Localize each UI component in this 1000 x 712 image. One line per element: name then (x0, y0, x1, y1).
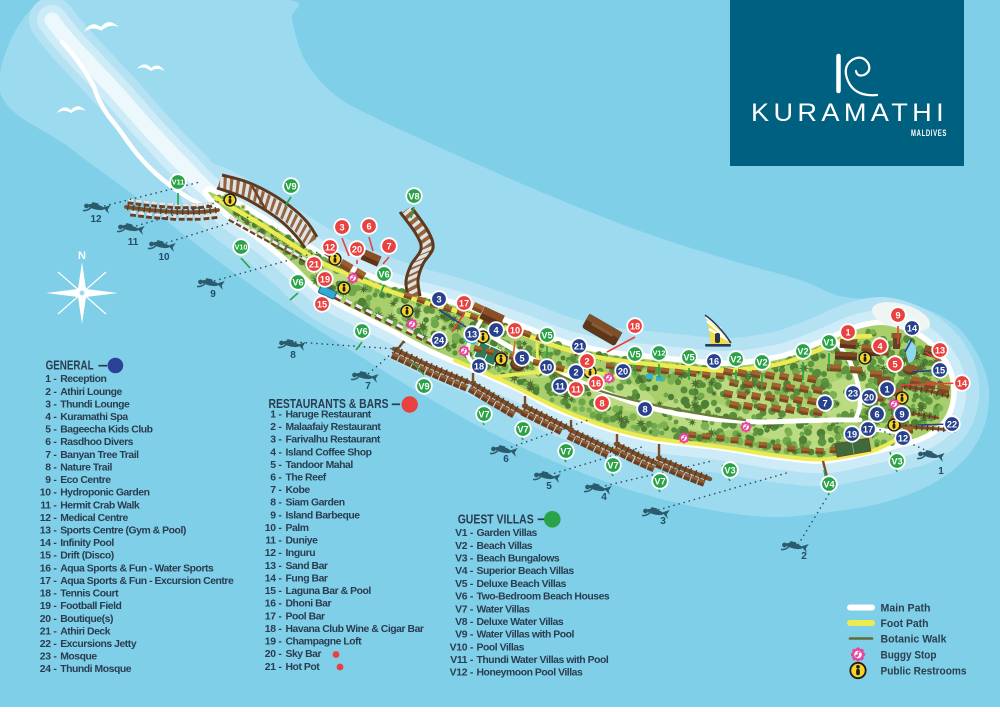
svg-text:13 -: 13 - (265, 561, 283, 572)
svg-text:V8 -: V8 - (455, 617, 474, 628)
svg-text:Thundi Lounge: Thundi Lounge (60, 399, 130, 410)
svg-text:21 -: 21 - (265, 662, 283, 673)
svg-text:19: 19 (847, 429, 857, 439)
svg-text:4 -: 4 - (270, 447, 282, 458)
svg-text:1: 1 (938, 466, 944, 477)
svg-text:13: 13 (935, 345, 945, 355)
svg-text:4: 4 (601, 492, 607, 503)
svg-text:6 -: 6 - (270, 473, 282, 484)
svg-text:V3: V3 (891, 456, 902, 466)
svg-text:V4: V4 (823, 479, 835, 489)
svg-text:The Reef: The Reef (286, 473, 327, 484)
svg-text:Honeymoon Pool Villas: Honeymoon Pool Villas (477, 668, 584, 679)
svg-text:3: 3 (436, 294, 441, 304)
svg-text:8 -: 8 - (45, 463, 57, 474)
svg-text:Bageecha Kids Club: Bageecha Kids Club (60, 425, 152, 436)
svg-text:6 -: 6 - (45, 437, 57, 448)
svg-text:7 -: 7 - (270, 485, 282, 496)
svg-text:Nature Trail: Nature Trail (60, 463, 112, 474)
svg-text:8: 8 (290, 350, 296, 361)
svg-text:Infinity Pool: Infinity Pool (60, 538, 114, 549)
svg-text:8 -: 8 - (270, 498, 282, 509)
svg-text:20: 20 (864, 392, 874, 402)
svg-text:V2: V2 (797, 346, 808, 356)
svg-text:17 -: 17 - (40, 576, 58, 587)
svg-text:18 -: 18 - (40, 589, 58, 600)
svg-text:V7: V7 (607, 460, 618, 470)
svg-text:14 -: 14 - (265, 574, 283, 585)
svg-text:24: 24 (434, 335, 445, 345)
svg-text:21: 21 (309, 259, 319, 269)
svg-text:V2 -: V2 - (455, 541, 474, 552)
svg-text:Botanic Walk: Botanic Walk (881, 634, 948, 646)
svg-text:V5: V5 (629, 349, 640, 359)
svg-text:9: 9 (899, 409, 904, 419)
svg-text:Champagne Loft: Champagne Loft (286, 637, 363, 648)
svg-text:3 -: 3 - (45, 399, 57, 410)
svg-text:8: 8 (599, 398, 604, 408)
svg-text:12 -: 12 - (40, 513, 58, 524)
svg-text:V5: V5 (541, 330, 552, 340)
svg-text:V1 -: V1 - (455, 528, 474, 539)
svg-text:Hydroponic Garden: Hydroponic Garden (60, 488, 149, 499)
svg-text:1: 1 (884, 384, 889, 394)
svg-text:Island Barbeque: Island Barbeque (286, 510, 361, 521)
svg-text:2 -: 2 - (45, 387, 57, 398)
svg-text:17: 17 (459, 298, 469, 308)
svg-text:Main Path: Main Path (881, 603, 931, 615)
svg-text:V10: V10 (235, 243, 248, 252)
svg-text:Malaafaiy Restaurant: Malaafaiy Restaurant (286, 422, 382, 433)
svg-text:Dhoni Bar: Dhoni Bar (286, 599, 332, 610)
svg-text:22 -: 22 - (40, 639, 58, 650)
svg-text:1 -: 1 - (270, 409, 282, 420)
svg-text:Hermit Crab Walk: Hermit Crab Walk (60, 500, 140, 511)
svg-text:Excursions Jetty: Excursions Jetty (60, 639, 137, 650)
svg-text:Reception: Reception (60, 374, 106, 385)
svg-text:V9: V9 (418, 381, 429, 391)
svg-text:Sand Bar: Sand Bar (286, 561, 328, 572)
svg-text:18: 18 (630, 321, 640, 331)
svg-text:7: 7 (386, 241, 391, 251)
svg-text:V5 -: V5 - (455, 579, 474, 590)
svg-text:Hot Pot: Hot Pot (286, 662, 321, 673)
svg-text:Water Villas: Water Villas (477, 604, 531, 615)
svg-text:Public Restrooms: Public Restrooms (881, 666, 967, 678)
svg-text:10 -: 10 - (265, 523, 283, 534)
svg-text:9: 9 (895, 310, 900, 320)
svg-text:7: 7 (822, 398, 827, 408)
svg-text:4 -: 4 - (45, 412, 57, 423)
svg-text:V5: V5 (683, 352, 694, 362)
svg-text:3: 3 (660, 516, 666, 527)
svg-text:14: 14 (957, 378, 968, 388)
svg-text:Sports Centre (Gym & Pool): Sports Centre (Gym & Pool) (60, 526, 186, 537)
svg-text:V12: V12 (653, 349, 666, 358)
svg-text:V12 -: V12 - (450, 668, 474, 679)
svg-text:20: 20 (618, 366, 628, 376)
svg-text:Duniye: Duniye (286, 536, 319, 547)
svg-text:11: 11 (128, 237, 139, 248)
svg-text:19 -: 19 - (265, 637, 283, 648)
svg-text:5: 5 (546, 481, 552, 492)
svg-text:Thundi Water Villas with Pool: Thundi Water Villas with Pool (477, 655, 609, 666)
svg-text:Tennis Court: Tennis Court (60, 589, 119, 600)
svg-text:15: 15 (317, 299, 327, 309)
svg-text:9 -: 9 - (270, 510, 282, 521)
svg-text:15 -: 15 - (265, 586, 283, 597)
svg-text:Medical Centre: Medical Centre (60, 513, 128, 524)
svg-text:16: 16 (709, 356, 719, 366)
svg-text:19: 19 (320, 274, 330, 284)
svg-text:15: 15 (935, 365, 945, 375)
svg-text:Thundi Mosque: Thundi Mosque (60, 664, 132, 675)
svg-text:8: 8 (642, 404, 647, 414)
svg-text:23 -: 23 - (40, 652, 58, 663)
svg-text:17 -: 17 - (265, 611, 283, 622)
svg-text:9 -: 9 - (45, 475, 57, 486)
svg-text:6: 6 (503, 454, 509, 465)
svg-text:Superior Beach Villas: Superior Beach Villas (477, 566, 575, 577)
svg-text:V7 -: V7 - (455, 604, 474, 615)
svg-text:V11 -: V11 - (450, 655, 474, 666)
svg-text:17: 17 (863, 424, 873, 434)
svg-text:Farivalhu Restaurant: Farivalhu Restaurant (286, 435, 381, 446)
svg-text:12: 12 (325, 242, 335, 252)
svg-text:V2: V2 (756, 357, 767, 367)
svg-text:Inguru: Inguru (286, 548, 316, 559)
svg-text:Pool Bar: Pool Bar (286, 611, 326, 622)
svg-text:11: 11 (571, 384, 581, 394)
svg-text:14 -: 14 - (40, 538, 58, 549)
svg-text:Deluxe Water Villas: Deluxe Water Villas (477, 617, 564, 628)
svg-text:Drift (Disco): Drift (Disco) (60, 551, 114, 562)
svg-text:24 -: 24 - (40, 664, 58, 675)
svg-text:Palm: Palm (286, 523, 309, 534)
svg-text:6: 6 (874, 409, 879, 419)
svg-text:Siam Garden: Siam Garden (286, 498, 345, 509)
svg-text:Boutique(s): Boutique(s) (60, 614, 113, 625)
svg-text:V7: V7 (517, 424, 528, 434)
svg-text:Pool Villas: Pool Villas (477, 642, 525, 653)
svg-text:15 -: 15 - (40, 551, 58, 562)
svg-text:18: 18 (474, 361, 484, 371)
svg-text:Banyan Tree Trail: Banyan Tree Trail (60, 450, 139, 461)
svg-text:13 -: 13 - (40, 526, 58, 537)
svg-text:V8: V8 (408, 191, 419, 201)
svg-text:5 -: 5 - (270, 460, 282, 471)
svg-text:2: 2 (584, 356, 589, 366)
svg-text:7 -: 7 - (45, 450, 57, 461)
svg-text:V3 -: V3 - (455, 554, 474, 565)
svg-text:11 -: 11 - (40, 500, 57, 511)
svg-text:V11: V11 (172, 178, 184, 187)
svg-text:21: 21 (574, 341, 584, 351)
svg-text:11 -: 11 - (265, 536, 282, 547)
svg-text:1: 1 (845, 327, 850, 337)
svg-text:Beach Villas: Beach Villas (477, 541, 533, 552)
svg-text:16 -: 16 - (265, 599, 283, 610)
svg-text:Rasdhoo Divers: Rasdhoo Divers (60, 437, 133, 448)
svg-text:Football Field: Football Field (60, 601, 121, 612)
svg-text:Laguna Bar & Pool: Laguna Bar & Pool (286, 586, 372, 597)
svg-text:KURAMATHI: KURAMATHI (751, 99, 948, 127)
svg-text:2: 2 (801, 551, 807, 562)
svg-text:7: 7 (365, 381, 371, 392)
svg-text:1 -: 1 - (45, 374, 57, 385)
svg-text:Beach Bungalows: Beach Bungalows (477, 554, 560, 565)
svg-text:4: 4 (877, 341, 883, 351)
svg-text:V10 -: V10 - (450, 642, 474, 653)
svg-text:Deluxe Beach Villas: Deluxe Beach Villas (477, 579, 567, 590)
svg-text:Buggy Stop: Buggy Stop (881, 650, 937, 662)
svg-text:5: 5 (519, 353, 524, 363)
svg-text:V4 -: V4 - (455, 566, 474, 577)
svg-text:Water Villas with Pool: Water Villas with Pool (477, 630, 575, 641)
svg-text:11: 11 (555, 381, 565, 391)
svg-text:MALDIVES: MALDIVES (911, 128, 947, 138)
svg-text:V6: V6 (378, 269, 389, 279)
svg-text:V6 -: V6 - (455, 592, 474, 603)
svg-text:V2: V2 (730, 354, 741, 364)
svg-text:Two-Bedroom Beach Houses: Two-Bedroom Beach Houses (477, 592, 610, 603)
svg-text:Eco Centre: Eco Centre (60, 475, 111, 486)
svg-text:Haruge Restaurant: Haruge Restaurant (286, 409, 372, 420)
svg-text:3 -: 3 - (270, 435, 282, 446)
svg-text:Garden Villas: Garden Villas (477, 528, 538, 539)
svg-text:Aqua Sports & Fun - Water Spor: Aqua Sports & Fun - Water Sports (60, 563, 214, 574)
svg-text:10: 10 (158, 252, 170, 263)
svg-text:6: 6 (366, 221, 371, 231)
svg-text:19 -: 19 - (40, 601, 58, 612)
svg-text:2 -: 2 - (270, 422, 282, 433)
svg-text:V3: V3 (724, 465, 735, 475)
svg-text:13: 13 (467, 329, 477, 339)
svg-text:18 -: 18 - (265, 624, 283, 635)
svg-text:V6: V6 (356, 326, 367, 336)
svg-text:GENERAL: GENERAL (46, 358, 94, 373)
svg-text:5: 5 (892, 359, 897, 369)
svg-text:20 -: 20 - (40, 614, 58, 625)
svg-text:Havana Club Wine & Cigar Bar: Havana Club Wine & Cigar Bar (286, 624, 424, 635)
svg-text:Kobe: Kobe (286, 485, 311, 496)
svg-text:5 -: 5 - (45, 425, 57, 436)
svg-text:23: 23 (848, 388, 858, 398)
svg-text:12: 12 (90, 214, 102, 225)
svg-text:4: 4 (493, 325, 499, 335)
svg-text:3: 3 (339, 222, 344, 232)
svg-text:V1: V1 (823, 337, 834, 347)
svg-text:N: N (78, 250, 86, 262)
svg-text:V7: V7 (654, 476, 665, 486)
svg-text:10: 10 (510, 325, 520, 335)
svg-text:9: 9 (210, 289, 216, 300)
svg-text:12: 12 (898, 433, 908, 443)
svg-text:16 -: 16 - (40, 563, 58, 574)
svg-text:Aqua Sports & Fun - Excursion: Aqua Sports & Fun - Excursion Centre (60, 576, 234, 587)
svg-text:10: 10 (542, 362, 552, 372)
svg-text:10 -: 10 - (40, 488, 58, 499)
svg-text:Athiri Deck: Athiri Deck (60, 626, 111, 637)
svg-text:Sky Bar: Sky Bar (286, 649, 322, 660)
svg-text:Athiri Lounge: Athiri Lounge (60, 387, 122, 398)
svg-text:Fung Bar: Fung Bar (286, 574, 328, 585)
svg-text:V9 -: V9 - (455, 630, 474, 641)
svg-text:V6: V6 (292, 277, 303, 287)
svg-text:V7: V7 (478, 409, 489, 419)
svg-text:Kuramathi Spa: Kuramathi Spa (60, 412, 128, 423)
svg-text:16: 16 (591, 378, 601, 388)
svg-text:20: 20 (352, 244, 362, 254)
svg-text:Island Coffee Shop: Island Coffee Shop (286, 447, 372, 458)
svg-text:22: 22 (947, 419, 957, 429)
svg-text:21 -: 21 - (40, 626, 58, 637)
svg-text:V9: V9 (285, 181, 296, 191)
svg-text:Mosque: Mosque (60, 652, 97, 663)
svg-text:12 -: 12 - (265, 548, 283, 559)
svg-text:GUEST VILLAS: GUEST VILLAS (458, 511, 534, 526)
svg-text:Tandoor Mahal: Tandoor Mahal (286, 460, 354, 471)
svg-text:Foot Path: Foot Path (881, 618, 929, 630)
svg-text:14: 14 (907, 323, 918, 333)
svg-text:V7: V7 (560, 446, 571, 456)
svg-text:20 -: 20 - (265, 649, 283, 660)
svg-text:2: 2 (573, 367, 578, 377)
